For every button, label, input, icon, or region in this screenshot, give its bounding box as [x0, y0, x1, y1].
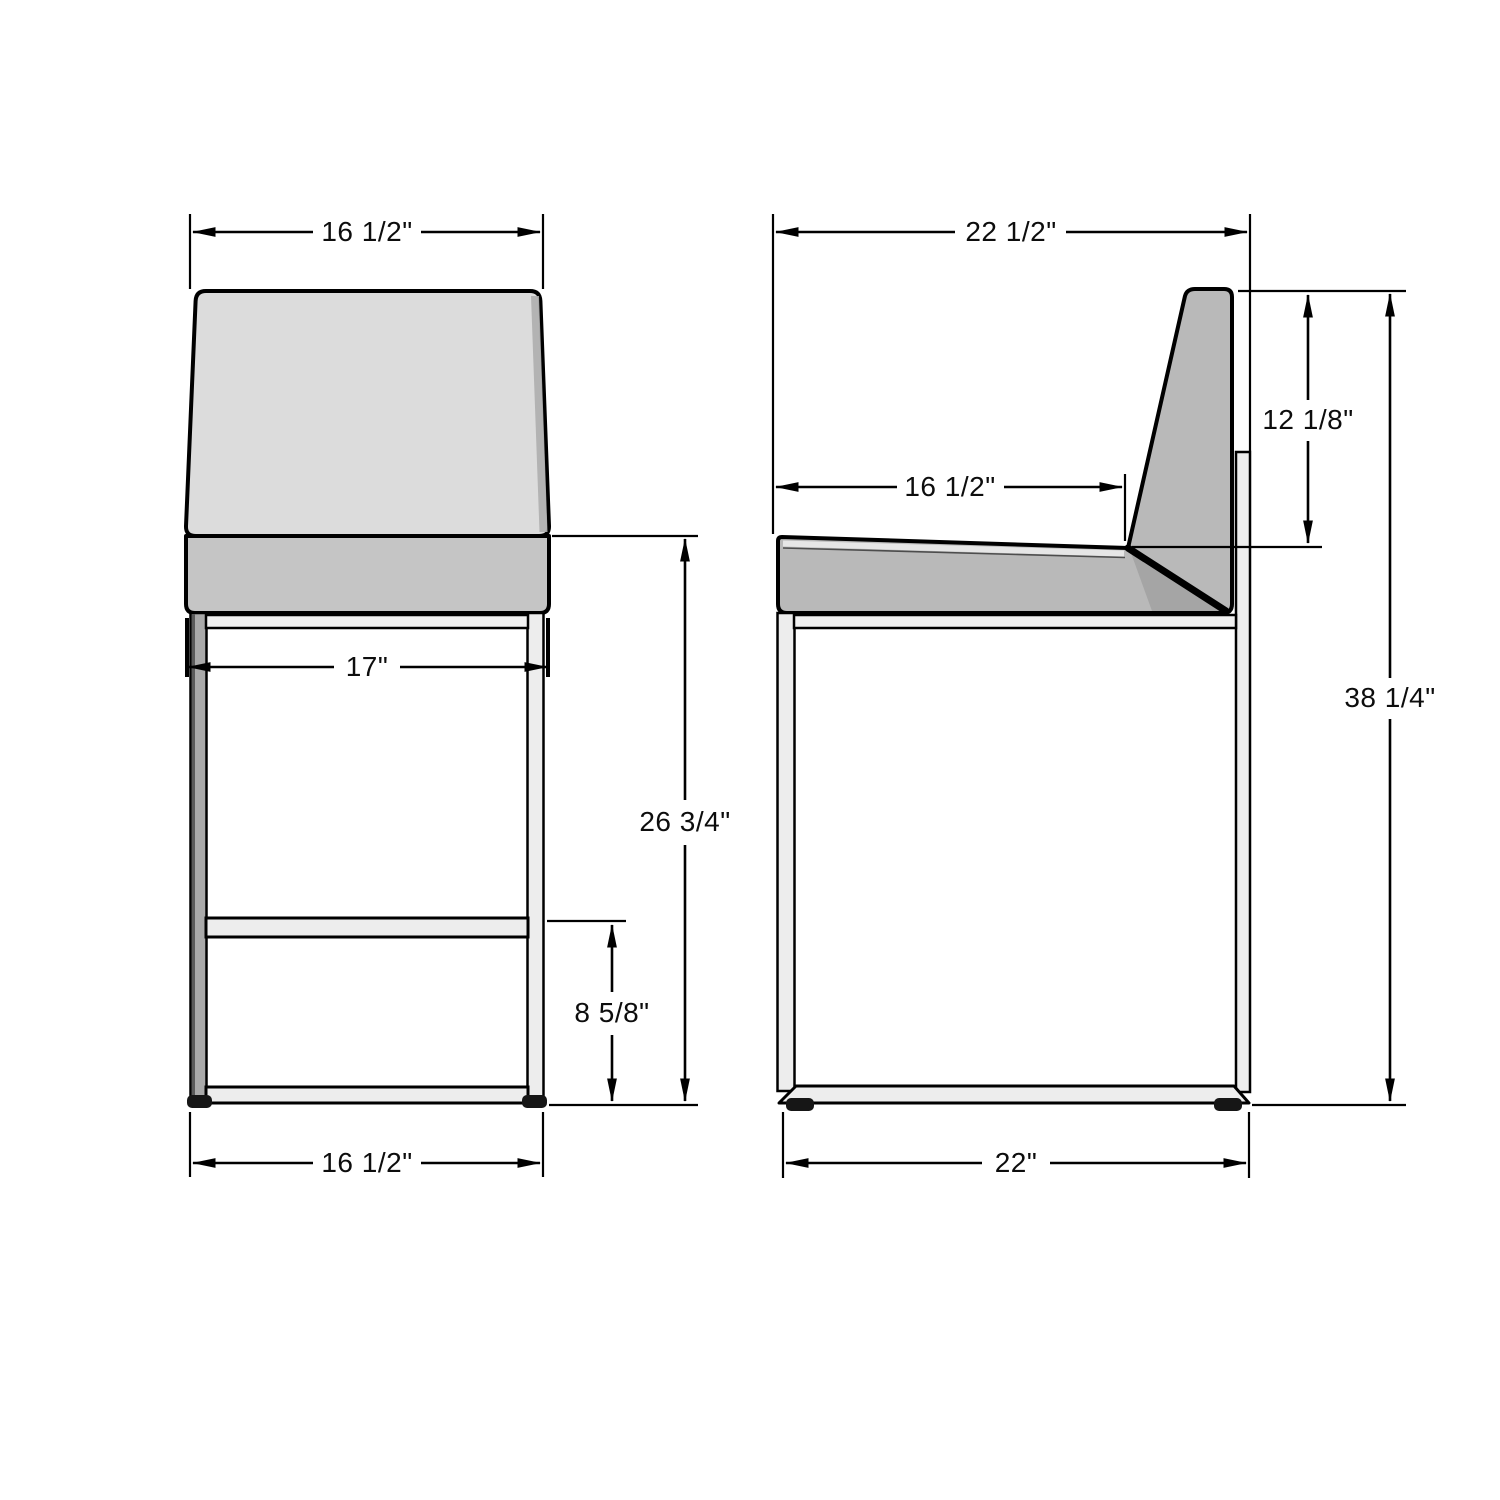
front-right-foot	[522, 1095, 547, 1108]
side-under-seat-rail	[794, 615, 1236, 628]
dim-label-front-seat-width: 17"	[346, 651, 389, 682]
front-left-foot	[187, 1095, 212, 1108]
side-rear-foot	[1214, 1098, 1242, 1111]
side-front-leg	[778, 613, 795, 1091]
stool-dimension-drawing: 16 1/2" 22 1/2" 16 1/2" 12 1/8" 38 1/4"	[0, 0, 1500, 1500]
side-front-foot	[786, 1098, 814, 1111]
dim-front-top-width: 16 1/2"	[190, 214, 543, 289]
drawing-svg: 16 1/2" 22 1/2" 16 1/2" 12 1/8" 38 1/4"	[0, 0, 1500, 1500]
front-under-seat-rail	[206, 615, 528, 628]
dim-base-depth: 22"	[783, 1112, 1249, 1178]
dim-label-front-bottom-width: 16 1/2"	[321, 1147, 412, 1178]
dim-label-overall-depth: 22 1/2"	[965, 216, 1056, 247]
dim-label-seat-depth: 16 1/2"	[904, 471, 995, 502]
dim-label-seat-height: 26 3/4"	[639, 806, 730, 837]
front-footrest-rail	[206, 918, 528, 937]
front-view	[186, 291, 549, 1108]
front-seat	[186, 536, 549, 613]
front-bottom-rail	[206, 1087, 528, 1103]
dim-front-bottom-width: 16 1/2"	[190, 1112, 543, 1178]
front-backrest	[186, 291, 549, 536]
dim-label-footrest-height: 8 5/8"	[574, 997, 649, 1028]
dim-seat-depth: 16 1/2"	[776, 471, 1125, 541]
dim-label-backrest-height: 12 1/8"	[1262, 404, 1353, 435]
side-cushion-silhouette	[778, 289, 1232, 613]
dim-label-overall-height: 38 1/4"	[1344, 682, 1435, 713]
dim-footrest-height: 8 5/8"	[547, 921, 650, 1101]
side-view	[778, 289, 1251, 1111]
side-bottom-rail	[779, 1086, 1249, 1103]
dim-label-front-top-width: 16 1/2"	[321, 216, 412, 247]
dim-label-base-depth: 22"	[995, 1147, 1038, 1178]
front-right-leg	[528, 613, 544, 1103]
